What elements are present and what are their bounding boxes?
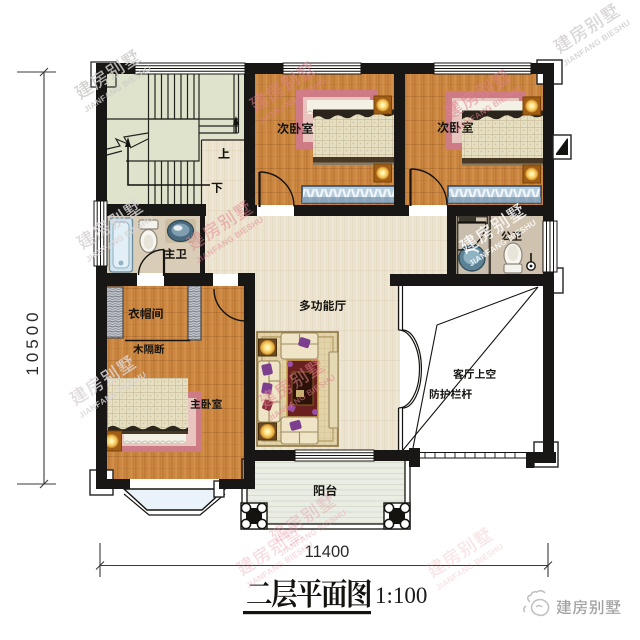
svg-text:1:100: 1:100 xyxy=(375,583,427,608)
svg-text:10500: 10500 xyxy=(23,308,42,375)
